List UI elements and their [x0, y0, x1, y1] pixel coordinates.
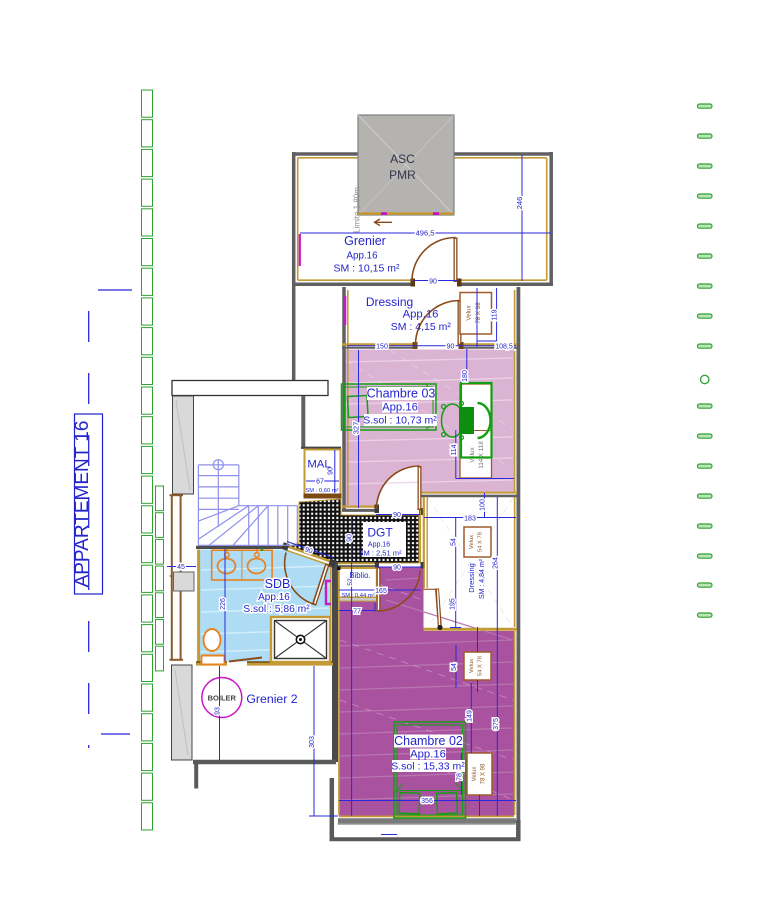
svg-text:108,5: 108,5	[495, 344, 513, 351]
svg-text:App.16: App.16	[382, 402, 418, 414]
svg-text:Velux: Velux	[469, 659, 475, 673]
svg-text:90: 90	[447, 344, 455, 351]
svg-text:67: 67	[316, 479, 324, 486]
svg-text:90: 90	[393, 512, 401, 519]
svg-text:DGT: DGT	[367, 526, 393, 540]
svg-text:Chambre 02: Chambre 02	[394, 734, 463, 748]
svg-text:54: 54	[451, 538, 458, 546]
svg-text:Velux: Velux	[469, 535, 475, 549]
svg-text:Grenier 2: Grenier 2	[246, 692, 297, 706]
svg-text:149: 149	[466, 710, 473, 722]
svg-text:S.sol : 5,86 m²: S.sol : 5,86 m²	[243, 604, 310, 615]
svg-text:BOILER: BOILER	[208, 694, 237, 703]
svg-text:78 X 98: 78 X 98	[481, 763, 487, 784]
svg-text:226: 226	[220, 598, 227, 610]
svg-text:100: 100	[480, 499, 487, 511]
svg-text:Limite 1.80m: Limite 1.80m	[353, 187, 362, 233]
svg-text:App.16: App.16	[346, 251, 378, 262]
svg-text:Biblio.: Biblio.	[349, 571, 370, 580]
svg-text:77: 77	[353, 609, 361, 616]
svg-text:Dressing: Dressing	[467, 563, 476, 593]
svg-text:119: 119	[492, 309, 499, 320]
svg-text:54: 54	[451, 663, 458, 671]
svg-text:Dressing: Dressing	[366, 295, 413, 309]
svg-text:SM : 4,15 m²: SM : 4,15 m²	[391, 321, 452, 333]
svg-text:90: 90	[393, 565, 401, 572]
svg-text:303: 303	[309, 736, 316, 748]
svg-text:183: 183	[464, 516, 476, 523]
svg-text:SM : 10,15 m²: SM : 10,15 m²	[334, 263, 400, 275]
svg-text:165: 165	[375, 588, 387, 595]
svg-text:90: 90	[347, 534, 354, 542]
svg-text:App.16: App.16	[368, 542, 390, 549]
svg-text:93: 93	[215, 707, 222, 715]
svg-text:Velux: Velux	[472, 767, 478, 782]
svg-text:SM : 0,60 m²: SM : 0,60 m²	[305, 488, 338, 494]
svg-text:SM : 2,51 m²: SM : 2,51 m²	[359, 549, 402, 558]
svg-text:356: 356	[421, 798, 433, 805]
svg-text:PMR: PMR	[389, 168, 416, 182]
svg-text:375: 375	[493, 718, 500, 730]
svg-text:Velux: Velux	[466, 305, 473, 321]
svg-text:App.16: App.16	[403, 309, 439, 321]
svg-text:Grenier: Grenier	[344, 234, 386, 248]
svg-text:54 X 78: 54 X 78	[478, 656, 484, 676]
svg-text:327: 327	[352, 422, 361, 435]
svg-text:ASC: ASC	[390, 152, 415, 166]
svg-text:SM : 4,84 m²: SM : 4,84 m²	[479, 558, 486, 599]
svg-text:S.sol : 15,33 m²: S.sol : 15,33 m²	[391, 761, 465, 773]
svg-text:App.16: App.16	[410, 749, 446, 761]
svg-text:264: 264	[492, 557, 499, 569]
svg-text:54 X 78: 54 X 78	[478, 532, 484, 552]
svg-text:MAL: MAL	[307, 459, 330, 471]
svg-text:180: 180	[462, 370, 469, 382]
svg-text:246: 246	[515, 197, 524, 210]
svg-text:150: 150	[376, 343, 388, 350]
svg-text:App.16: App.16	[258, 592, 290, 603]
svg-text:195: 195	[450, 598, 457, 610]
svg-text:Velux: Velux	[469, 447, 476, 463]
svg-text:APPARTEMENT 16: APPARTEMENT 16	[72, 421, 93, 588]
svg-text:114: 114	[451, 444, 458, 455]
svg-text:114 X 118: 114 X 118	[478, 441, 485, 469]
svg-text:496,5: 496,5	[416, 229, 435, 238]
svg-text:78: 78	[456, 773, 463, 781]
svg-text:78 X 98: 78 X 98	[475, 302, 482, 324]
svg-text:90: 90	[429, 279, 437, 286]
svg-text:45: 45	[177, 564, 185, 571]
svg-text:SDB: SDB	[265, 577, 291, 591]
svg-text:S.sol : 10,73 m²: S.sol : 10,73 m²	[363, 415, 437, 427]
svg-text:SM : 0,44 m²: SM : 0,44 m²	[341, 593, 374, 599]
svg-text:Chambre 03: Chambre 03	[367, 387, 436, 401]
